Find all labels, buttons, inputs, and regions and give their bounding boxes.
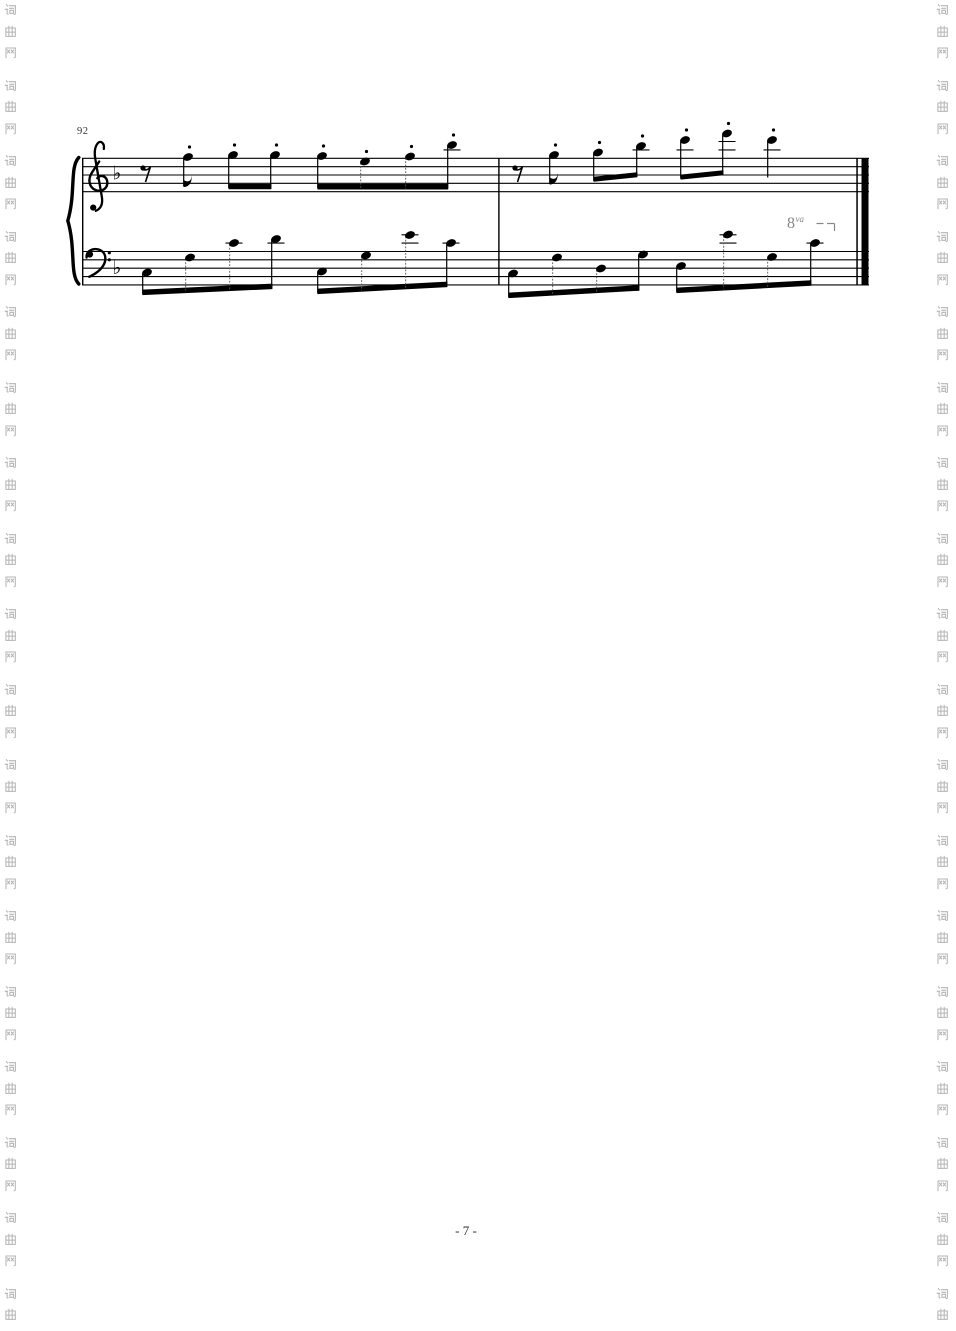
staccato-dot [275, 143, 278, 146]
watermark-char [4, 780, 17, 798]
beam [229, 184, 272, 189]
beam [594, 172, 638, 182]
staccato-dot [641, 134, 644, 137]
watermark-char [4, 704, 17, 722]
watermark-char [936, 402, 949, 420]
watermark-char [4, 758, 17, 776]
treble-clef [89, 162, 107, 191]
watermark-char [4, 1211, 17, 1229]
page-number: - 7 - [396, 1223, 536, 1239]
watermark-char [4, 801, 17, 819]
watermark-char [936, 834, 949, 852]
watermark-char [4, 424, 17, 442]
staccato-dot [365, 150, 368, 153]
treble-note-head [404, 151, 416, 161]
watermark-char [4, 1028, 17, 1046]
beam [681, 170, 724, 179]
barline [498, 158, 499, 285]
flat-sign: ♭ [113, 257, 122, 279]
bass-note-head [551, 252, 563, 262]
watermark-char [4, 1136, 17, 1154]
bass-note-head [184, 252, 196, 262]
watermark-char [4, 683, 17, 701]
watermark-char [4, 499, 17, 517]
watermark-char [936, 381, 949, 399]
watermark-char [936, 1157, 949, 1175]
watermark-char [936, 1287, 949, 1305]
watermark-char [936, 985, 949, 1003]
watermark-char [936, 456, 949, 474]
beam [508, 285, 639, 298]
barline [862, 158, 869, 285]
watermark-char [4, 1179, 17, 1197]
watermark-char [936, 1006, 949, 1024]
staccato-dot [410, 145, 413, 148]
watermark-char [936, 478, 949, 496]
measure-number: 92 [77, 126, 101, 137]
watermark-char [4, 1006, 17, 1024]
staccato-dot [554, 143, 557, 146]
bass-clef-dot [108, 258, 111, 261]
watermark-char [4, 381, 17, 399]
watermark-char [4, 1060, 17, 1078]
watermark-char [4, 952, 17, 970]
watermark-char [4, 532, 17, 550]
watermark-char [4, 1287, 17, 1305]
watermark-char [4, 855, 17, 873]
watermark-char [936, 726, 949, 744]
watermark-char [936, 909, 949, 927]
watermark-char [936, 629, 949, 647]
staccato-dot [598, 141, 601, 144]
bass-note-head [404, 230, 416, 240]
watermark-char [4, 726, 17, 744]
watermark-char [4, 650, 17, 668]
watermark-char [4, 553, 17, 571]
watermark-char [936, 801, 949, 819]
bass-clef-dot [108, 251, 111, 254]
beam [676, 280, 811, 293]
watermark-char [4, 478, 17, 496]
watermark-char [936, 1233, 949, 1251]
watermark-char [936, 1028, 949, 1046]
staccato-dot [685, 128, 688, 131]
watermark-char [4, 931, 17, 949]
watermark-char [936, 1060, 949, 1078]
watermark-char [4, 348, 17, 366]
watermark-char [936, 952, 949, 970]
watermark-char [936, 877, 949, 895]
watermark-char [4, 629, 17, 647]
bass-note-head [766, 252, 778, 262]
watermark-char [936, 424, 949, 442]
watermark-char [936, 1082, 949, 1100]
music-system: ♭♭8va [0, 0, 956, 340]
watermark-char [4, 834, 17, 852]
watermark-char [936, 1211, 949, 1229]
watermark-char [936, 780, 949, 798]
watermark-char [936, 532, 949, 550]
eighth-flag [184, 176, 192, 188]
sheet-music-page: ♭♭8va 92 - 7 - [0, 0, 956, 1331]
watermark-char [4, 985, 17, 1003]
watermark-char [4, 1308, 17, 1326]
watermark-char [4, 402, 17, 420]
beam [318, 184, 449, 190]
watermark-char [936, 499, 949, 517]
bass-note-head [722, 229, 734, 239]
watermark-char [4, 1082, 17, 1100]
barline [856, 158, 858, 285]
watermark-char [936, 650, 949, 668]
staccato-dot [772, 128, 775, 131]
watermark-char [4, 575, 17, 593]
staccato-dot [322, 144, 325, 147]
barline [82, 158, 83, 285]
beam [317, 282, 447, 295]
watermark-char [4, 1157, 17, 1175]
watermark-char [4, 607, 17, 625]
flat-sign: ♭ [113, 163, 122, 185]
bass-note-head [595, 263, 607, 273]
watermark-char [936, 931, 949, 949]
watermark-char [936, 855, 949, 873]
octave-mark: 8va [787, 214, 804, 232]
staccato-dot [727, 122, 730, 125]
watermark-char [936, 348, 949, 366]
watermark-char [936, 758, 949, 776]
staccato-dot [452, 133, 455, 136]
watermark-char [4, 877, 17, 895]
watermark-char [936, 1254, 949, 1272]
watermark-char [936, 1308, 949, 1326]
watermark-char [936, 683, 949, 701]
treble-clef [90, 205, 96, 211]
staccato-dot [188, 145, 191, 148]
staccato-dot [233, 143, 236, 146]
watermark-char [936, 553, 949, 571]
watermark-char [4, 909, 17, 927]
watermark-char [936, 704, 949, 722]
watermark-char [936, 607, 949, 625]
system-brace [68, 158, 79, 285]
watermark-char [936, 1103, 949, 1121]
watermark-char [4, 1103, 17, 1121]
watermark-char [936, 575, 949, 593]
bass-note-head [228, 238, 240, 248]
watermark-char [936, 1179, 949, 1197]
watermark-char [936, 1136, 949, 1154]
watermark-char [4, 1233, 17, 1251]
watermark-char [4, 456, 17, 474]
watermark-char [4, 1254, 17, 1272]
